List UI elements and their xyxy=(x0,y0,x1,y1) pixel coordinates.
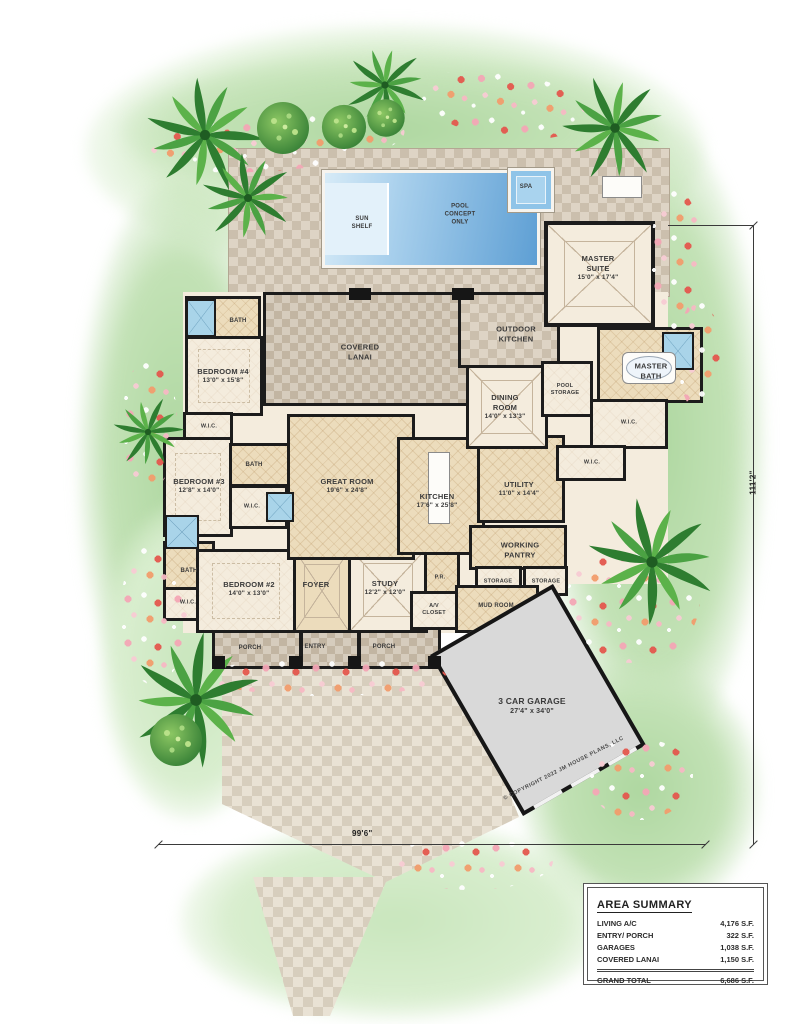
label-text: STORAGE xyxy=(532,578,561,585)
summary-label: ENTRY/ PORCH xyxy=(597,930,653,942)
summary-value: 6,686 S.F. xyxy=(720,975,754,987)
room-dims: 12'2" x 12'0" xyxy=(365,589,406,597)
room-name: BEDROOM #4 xyxy=(197,367,249,377)
summary-value: 1,038 S.F. xyxy=(720,942,754,954)
label-wic-master: W.I.C. xyxy=(621,419,637,426)
room-name: A/V CLOSET xyxy=(422,603,446,617)
label-text: W.I.C. xyxy=(621,419,637,426)
label-entry: ENTRY xyxy=(304,644,325,652)
porch-post xyxy=(212,656,225,669)
summary-label: LIVING A/C xyxy=(597,918,637,930)
shower-bath2 xyxy=(165,515,199,549)
porch-post xyxy=(348,656,361,669)
room-name: DINING ROOM xyxy=(485,393,526,413)
label-study: STUDY12'2" x 12'0" xyxy=(365,579,406,597)
lanai-post xyxy=(452,288,474,300)
summary-value: 4,176 S.F. xyxy=(720,918,754,930)
room-dims: 12'8" x 14'0" xyxy=(173,487,225,495)
dimension-label-width: 99'6" xyxy=(352,829,373,838)
room-name: UTILITY xyxy=(499,480,539,490)
label-pool-concept: POOL CONCEPT ONLY xyxy=(445,203,476,226)
room-name: MASTER SUITE xyxy=(578,254,619,274)
room-dims: 14'0" x 13'0" xyxy=(223,590,275,598)
label-porch-right: PORCH xyxy=(373,644,396,652)
room-name: COVERED LANAI xyxy=(341,342,380,362)
room-name: FOYER xyxy=(303,580,330,590)
lanai-post xyxy=(349,288,371,300)
label-text: PORCH xyxy=(373,644,396,652)
room-dims: 17'6" x 25'8" xyxy=(417,502,458,510)
label-kitchen: KITCHEN17'6" x 25'8" xyxy=(417,492,458,510)
label-wic-hall: W.I.C. xyxy=(584,459,600,466)
porch-post xyxy=(289,656,302,669)
label-text: SPA xyxy=(520,184,533,192)
label-wic2: W.I.C. xyxy=(180,599,196,606)
room-name: MASTER BATH xyxy=(635,361,668,381)
dimension-extension-line xyxy=(668,225,753,226)
room-name: GREAT ROOM xyxy=(320,477,373,487)
label-bath3: BATH xyxy=(245,462,262,470)
label-covered-lanai: COVERED LANAI xyxy=(341,342,380,362)
label-text: W.I.C. xyxy=(201,423,217,430)
label-great-room: GREAT ROOM19'6" x 24'8" xyxy=(320,477,373,495)
label-text: PORCH xyxy=(239,645,262,653)
label-garage: 3 CAR GARAGE27'4" x 34'0" xyxy=(498,696,566,716)
label-text: ENTRY xyxy=(304,644,325,652)
summary-label: GARAGES xyxy=(597,942,635,954)
shower-bath4 xyxy=(186,299,216,337)
label-foyer: FOYER xyxy=(303,580,330,590)
room-dims: 19'6" x 24'8" xyxy=(320,487,373,495)
room-dims: 13'0" x 15'8" xyxy=(197,377,249,385)
label-storage-2: STORAGE xyxy=(532,578,561,585)
deck-planter xyxy=(602,176,642,198)
label-pool-storage: POOL STORAGE xyxy=(551,383,580,397)
room-foyer xyxy=(293,549,351,633)
summary-row: LIVING A/C4,176 S.F. xyxy=(597,918,754,930)
summary-total-row: GRAND TOTAL6,686 S.F. xyxy=(597,969,754,987)
room-name: WORKING PANTRY xyxy=(501,540,539,560)
dimension-label-height: 111'2" xyxy=(749,470,758,494)
label-wic4: W.I.C. xyxy=(201,423,217,430)
label-text: BATH xyxy=(180,568,197,576)
label-master-suite: MASTER SUITE15'0" x 17'4" xyxy=(578,254,619,282)
summary-row: COVERED LANAI1,150 S.F. xyxy=(597,954,754,966)
label-bedroom2: BEDROOM #214'0" x 13'0" xyxy=(223,580,275,598)
porch-post xyxy=(428,656,441,669)
label-av-closet: A/V CLOSET xyxy=(422,603,446,617)
label-working-pantry: WORKING PANTRY xyxy=(501,540,539,560)
label-sun-shelf: SUN SHELF xyxy=(352,216,373,232)
summary-value: 1,150 S.F. xyxy=(720,954,754,966)
summary-label: COVERED LANAI xyxy=(597,954,659,966)
room-name: BEDROOM #3 xyxy=(173,477,225,487)
label-outdoor-kitchen: OUTDOOR KITCHEN xyxy=(496,324,536,344)
label-pr: P.R. xyxy=(435,574,446,581)
room-name: KITCHEN xyxy=(417,492,458,502)
label-storage-1: STORAGE xyxy=(484,578,513,585)
label-bath4: BATH xyxy=(229,318,246,326)
room-dims: 27'4" x 34'0" xyxy=(498,707,566,716)
area-summary-title: AREA SUMMARY xyxy=(597,899,692,913)
area-summary: AREA SUMMARY LIVING A/C4,176 S.F. ENTRY/… xyxy=(583,883,768,985)
room-name: BEDROOM #2 xyxy=(223,580,275,590)
summary-value: 322 S.F. xyxy=(726,930,754,942)
room-name: POOL STORAGE xyxy=(551,383,580,397)
room-name: STUDY xyxy=(365,579,406,589)
label-text: BATH xyxy=(245,462,262,470)
label-text: STORAGE xyxy=(484,578,513,585)
summary-label: GRAND TOTAL xyxy=(597,975,651,987)
label-spa: SPA xyxy=(520,184,533,192)
room-dims: 11'0" x 14'4" xyxy=(499,490,539,498)
summary-row: GARAGES1,038 S.F. xyxy=(597,942,754,954)
summary-row: ENTRY/ PORCH322 S.F. xyxy=(597,930,754,942)
dimension-line-height xyxy=(753,225,754,845)
room-name: 3 CAR GARAGE xyxy=(498,696,566,707)
dimension-line-width xyxy=(158,844,706,845)
label-wic3: W.I.C. xyxy=(244,503,260,510)
label-text: BATH xyxy=(229,318,246,326)
room-name: OUTDOOR KITCHEN xyxy=(496,324,536,344)
label-dining: DINING ROOM14'0" x 13'3" xyxy=(485,393,526,421)
label-utility: UTILITY11'0" x 14'4" xyxy=(499,480,539,498)
room-dims: 15'0" x 17'4" xyxy=(578,274,619,282)
label-mud-room: MUD ROOM xyxy=(478,603,514,611)
label-bath2: BATH xyxy=(180,568,197,576)
label-text: SUN SHELF xyxy=(352,216,373,232)
area-summary-inner: AREA SUMMARY LIVING A/C4,176 S.F. ENTRY/… xyxy=(587,887,764,981)
label-porch-left: PORCH xyxy=(239,645,262,653)
label-text: W.I.C. xyxy=(244,503,260,510)
label-text: POOL CONCEPT ONLY xyxy=(445,203,476,226)
kitchen-island xyxy=(428,452,450,524)
label-bedroom4: BEDROOM #413'0" x 15'8" xyxy=(197,367,249,385)
shower-bath3 xyxy=(266,492,294,522)
floor-plan-canvas: SUN SHELF POOL CONCEPT ONLY SPA MASTER S… xyxy=(0,0,791,1024)
label-text: W.I.C. xyxy=(180,599,196,606)
label-text: W.I.C. xyxy=(584,459,600,466)
room-dims: 14'0" x 13'3" xyxy=(485,413,526,421)
label-master-bath: MASTER BATH xyxy=(635,361,668,381)
room-name: P.R. xyxy=(435,574,446,581)
room-name: MUD ROOM xyxy=(478,603,514,611)
label-bedroom3: BEDROOM #312'8" x 14'0" xyxy=(173,477,225,495)
